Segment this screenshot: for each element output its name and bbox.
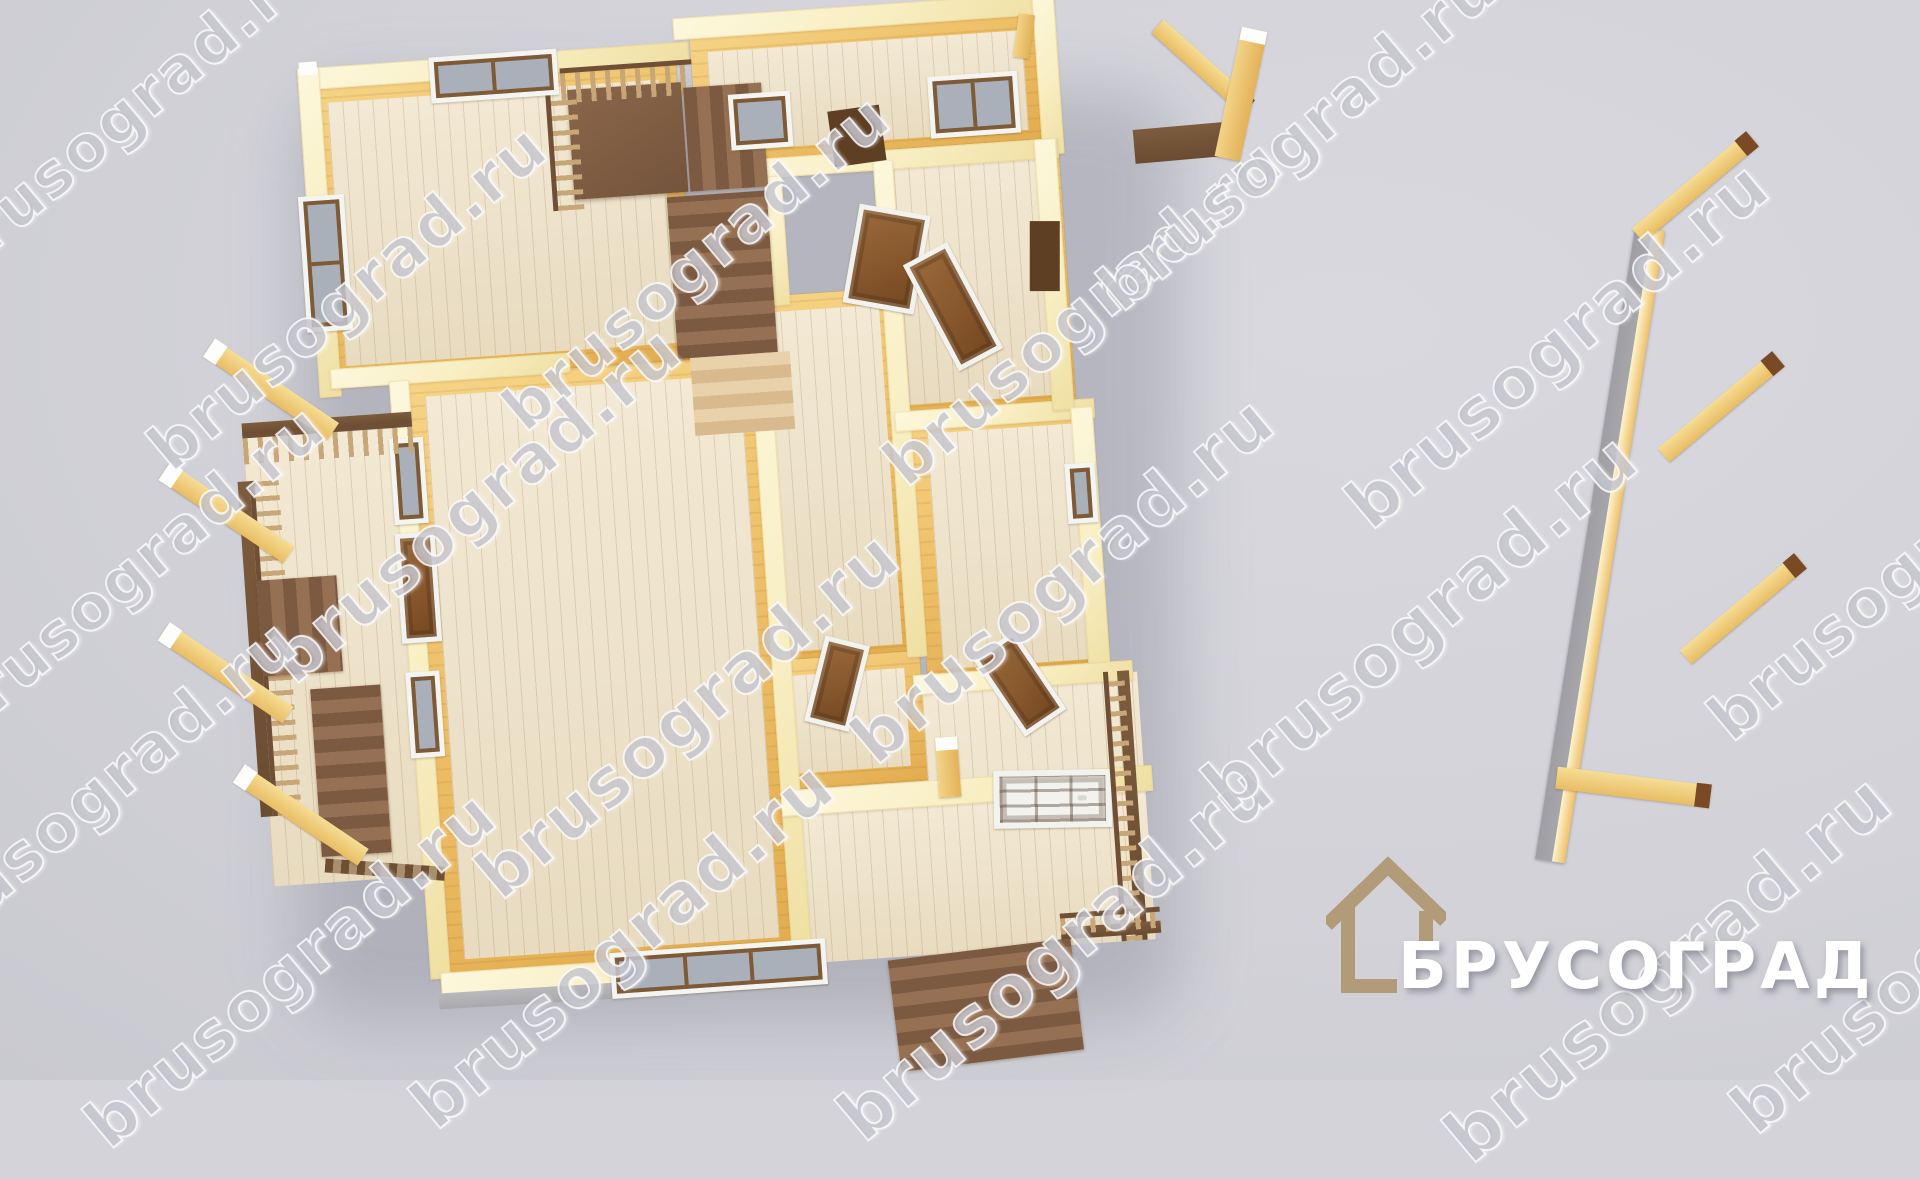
watermark-text: brusograd.ru [0,390,339,756]
watermark-text: brusograd.ru [0,605,312,981]
watermark-text: brusograd.ru [461,516,915,915]
watermark-text: brusograd.ru [836,381,1290,780]
watermark-text: brusograd.ru [0,0,334,295]
watermark-text: brusograd.ru [1331,146,1785,545]
brusograd-logo: БРУСОГРАД [1326,846,1886,1016]
watermark-text: brusograd.ru [1694,380,1920,756]
watermark-text: brusograd.ru [134,110,562,486]
logo-text: БРУСОГРАД [1398,930,1875,1004]
watermark-text: brusograd.ru [255,311,696,699]
watermark-text: brusograd.ru [1187,417,1654,828]
watermark-text: brusograd.ru [1084,0,1512,326]
watermark-text: brusograd.ru [822,747,1289,1158]
watermark-text: brusograd.ru [869,125,1297,501]
render-canvas: brusograd.rubrusograd.rubrusograd.rubrus… [0,0,1920,1080]
watermark-text: brusograd.ru [488,80,904,446]
